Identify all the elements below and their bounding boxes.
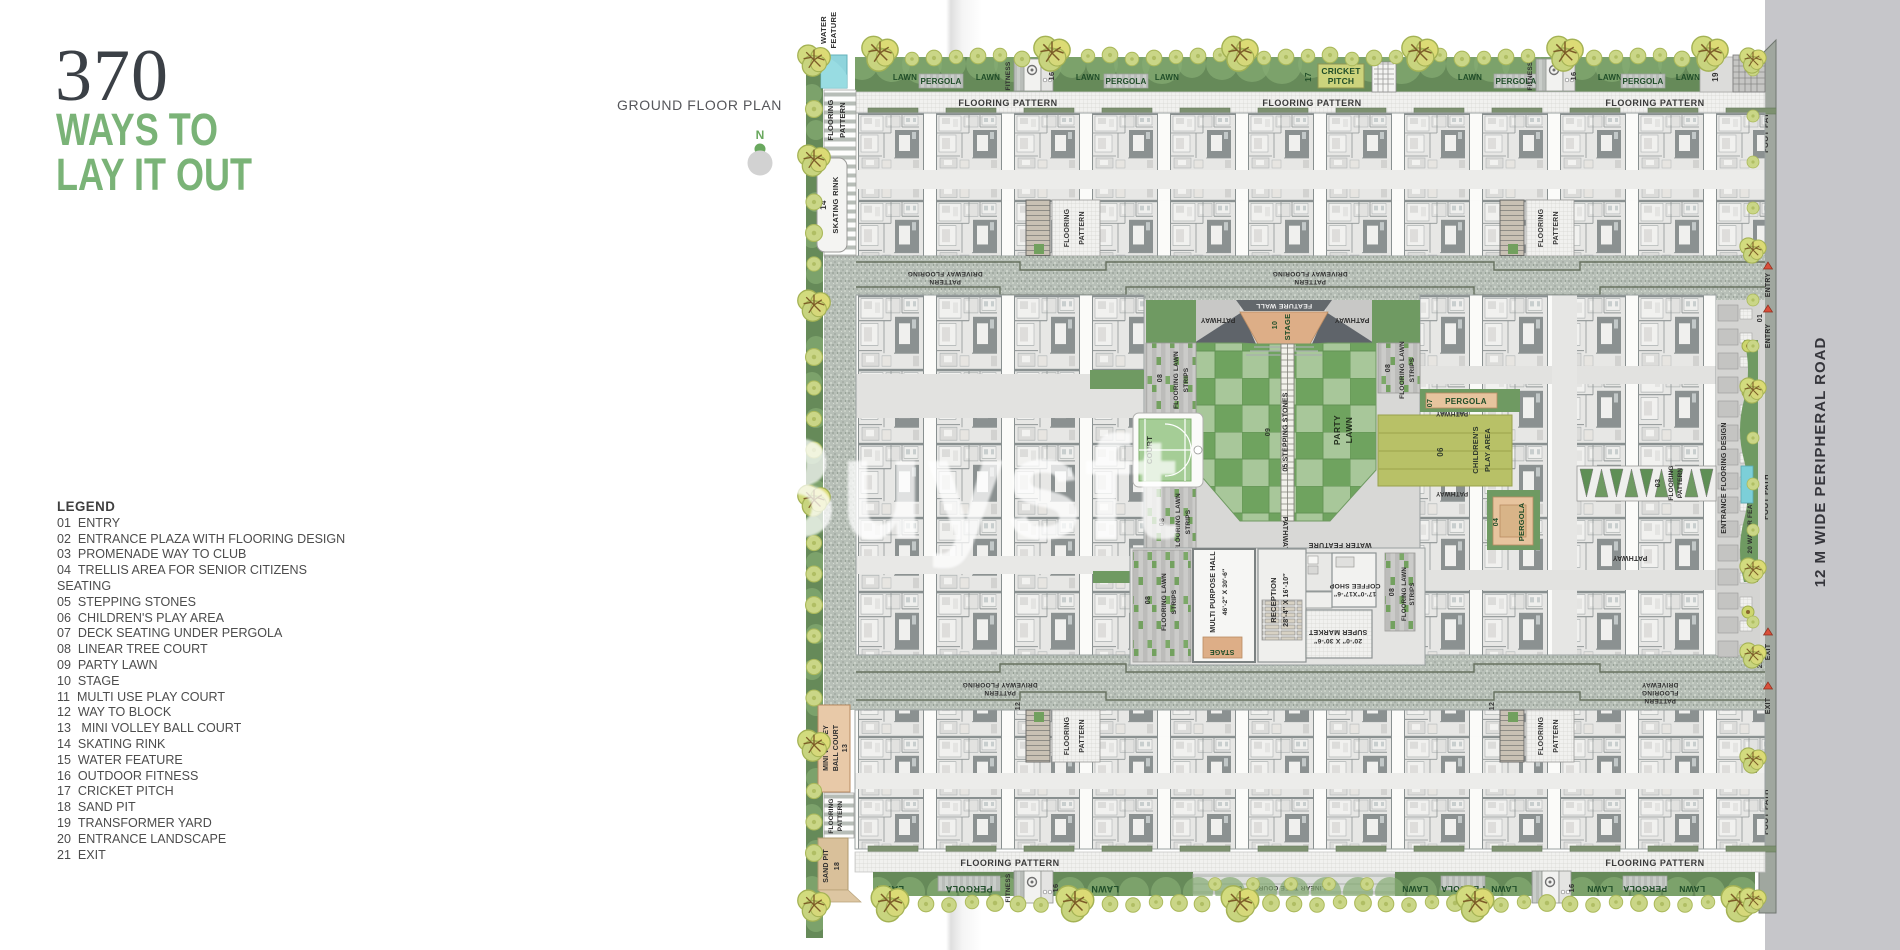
svg-text:PARTY: PARTY bbox=[1332, 415, 1342, 445]
svg-text:10: 10 bbox=[1272, 321, 1279, 329]
svg-text:FLOORING LAWN: FLOORING LAWN bbox=[1399, 341, 1406, 399]
svg-text:FLOORING PATTERN: FLOORING PATTERN bbox=[960, 858, 1059, 868]
svg-text:MULTI PURPOSE HALL: MULTI PURPOSE HALL bbox=[1208, 551, 1217, 633]
svg-text:PERGOLA: PERGOLA bbox=[1445, 397, 1487, 406]
svg-text:LAWN: LAWN bbox=[1344, 417, 1354, 444]
svg-text:FLOORING: FLOORING bbox=[826, 99, 835, 140]
svg-text:19: 19 bbox=[1711, 72, 1720, 82]
svg-text:FITNESS: FITNESS bbox=[1527, 61, 1534, 90]
svg-text:STRIPS: STRIPS bbox=[1185, 509, 1192, 534]
svg-text:WATER: WATER bbox=[819, 16, 828, 44]
svg-text:08: 08 bbox=[1157, 374, 1164, 382]
svg-text:07: 07 bbox=[1427, 399, 1434, 407]
svg-text:PATTERN: PATTERN bbox=[929, 278, 961, 285]
svg-text:PATHWAY: PATHWAY bbox=[1435, 410, 1468, 417]
svg-text:01: 01 bbox=[1757, 314, 1764, 322]
svg-text:05 STEPPING STONES: 05 STEPPING STONES bbox=[1283, 392, 1290, 471]
svg-text:STAGE: STAGE bbox=[1210, 648, 1235, 655]
svg-text:BALL COURT: BALL COURT bbox=[833, 724, 840, 771]
svg-text:FLOORING: FLOORING bbox=[1668, 465, 1675, 500]
svg-text:16: 16 bbox=[1567, 884, 1576, 893]
svg-text:06: 06 bbox=[1436, 447, 1445, 457]
svg-text:LAWN: LAWN bbox=[1091, 884, 1119, 894]
svg-text:46'-2″ X 30'-6″: 46'-2″ X 30'-6″ bbox=[1222, 568, 1229, 615]
svg-text:PLAY AREA: PLAY AREA bbox=[1483, 428, 1492, 472]
svg-text:PATTERN: PATTERN bbox=[1677, 468, 1684, 499]
svg-text:FLOORING PATTERN: FLOORING PATTERN bbox=[1605, 98, 1704, 108]
svg-text:DRIVEWAY: DRIVEWAY bbox=[1641, 681, 1678, 688]
svg-text:FLOORING LAWN: FLOORING LAWN bbox=[1173, 351, 1180, 409]
svg-text:PATTERN: PATTERN bbox=[838, 102, 847, 138]
svg-text:FEATURE: FEATURE bbox=[829, 12, 838, 49]
svg-text:ENTRANCE FLOORING DESIGN: ENTRANCE FLOORING DESIGN bbox=[1721, 422, 1728, 533]
svg-text:PERGOLA: PERGOLA bbox=[921, 77, 962, 86]
svg-text:LAWN: LAWN bbox=[1679, 884, 1705, 894]
svg-text:PITCH: PITCH bbox=[1328, 76, 1355, 86]
svg-text:09: 09 bbox=[1265, 428, 1272, 436]
svg-text:LAWN: LAWN bbox=[1076, 73, 1100, 82]
svg-text:PATTERN: PATTERN bbox=[1079, 719, 1086, 752]
svg-text:08: 08 bbox=[1145, 596, 1152, 604]
svg-text:12: 12 bbox=[1489, 702, 1496, 710]
svg-text:PATHWAY: PATHWAY bbox=[1435, 490, 1468, 497]
svg-text:ENTRY: ENTRY bbox=[1765, 324, 1772, 349]
svg-text:08: 08 bbox=[1385, 364, 1392, 372]
svg-text:LAWN: LAWN bbox=[1587, 884, 1613, 894]
svg-text:PERGOLA: PERGOLA bbox=[1623, 884, 1667, 894]
svg-text:SUPER MARKET: SUPER MARKET bbox=[1308, 628, 1367, 635]
svg-text:LAWN: LAWN bbox=[1491, 884, 1517, 894]
svg-text:FLOORING: FLOORING bbox=[1538, 208, 1545, 247]
svg-text:FEATURE WALL: FEATURE WALL bbox=[1256, 302, 1312, 309]
svg-text:17: 17 bbox=[1304, 72, 1313, 82]
svg-text:CHILDREN'S: CHILDREN'S bbox=[1471, 426, 1480, 474]
svg-text:LAWN: LAWN bbox=[1402, 884, 1428, 894]
svg-text:PERGOLA: PERGOLA bbox=[1106, 77, 1147, 86]
svg-text:RECEPTION: RECEPTION bbox=[1269, 577, 1278, 623]
svg-text:FLOORING: FLOORING bbox=[828, 798, 835, 833]
svg-text:STRIPS: STRIPS bbox=[1183, 367, 1190, 392]
svg-text:FLOORING: FLOORING bbox=[1642, 689, 1679, 696]
svg-text:PATHWAY: PATHWAY bbox=[1201, 316, 1236, 323]
svg-text:08: 08 bbox=[1389, 588, 1396, 596]
svg-text:18: 18 bbox=[834, 862, 841, 870]
svg-text:N: N bbox=[756, 128, 765, 142]
svg-text:PERGOLA: PERGOLA bbox=[1623, 77, 1664, 86]
svg-text:STRIPS: STRIPS bbox=[1409, 357, 1416, 382]
svg-text:PATHWAY: PATHWAY bbox=[1613, 554, 1648, 561]
svg-text:FLOORING PATTERN: FLOORING PATTERN bbox=[958, 98, 1057, 108]
svg-text:PERGOLA: PERGOLA bbox=[945, 884, 992, 894]
svg-text:PATHWAY: PATHWAY bbox=[1335, 316, 1370, 323]
svg-text:PATTERN: PATTERN bbox=[1553, 211, 1560, 244]
svg-text:FLOORING PATTERN: FLOORING PATTERN bbox=[1262, 98, 1361, 108]
svg-text:PATTERN: PATTERN bbox=[984, 689, 1016, 696]
svg-text:FLOORING: FLOORING bbox=[1538, 716, 1545, 755]
svg-text:CRICKET: CRICKET bbox=[1321, 66, 1361, 76]
svg-text:PATTERN: PATTERN bbox=[1079, 211, 1086, 244]
svg-text:17'-0″X17'-6″: 17'-0″X17'-6″ bbox=[1334, 590, 1376, 597]
svg-text:LAWN: LAWN bbox=[976, 73, 1000, 82]
svg-text:12 M WIDE PERIPHERAL ROAD: 12 M WIDE PERIPHERAL ROAD bbox=[1812, 337, 1829, 588]
svg-text:EXIT: EXIT bbox=[1765, 697, 1772, 714]
svg-text:DRIVEWAY FLOORING: DRIVEWAY FLOORING bbox=[1272, 270, 1347, 277]
svg-text:04: 04 bbox=[1493, 518, 1500, 526]
svg-text:SKATING RINK: SKATING RINK bbox=[831, 176, 840, 233]
svg-text:PATTERN: PATTERN bbox=[837, 801, 844, 832]
svg-text:PATTERN: PATTERN bbox=[1553, 719, 1560, 752]
svg-text:LAWN: LAWN bbox=[1676, 73, 1700, 82]
svg-text:03: 03 bbox=[1655, 479, 1662, 487]
svg-text:LAWN: LAWN bbox=[1458, 73, 1482, 82]
svg-text:STRIPS: STRIPS bbox=[1409, 583, 1416, 606]
svg-text:PERGOLA: PERGOLA bbox=[1517, 502, 1526, 541]
svg-text:STRIPS: STRIPS bbox=[1171, 589, 1178, 614]
svg-text:FLOORING: FLOORING bbox=[1064, 208, 1071, 247]
svg-text:16: 16 bbox=[1569, 72, 1578, 81]
svg-text:WATER FEATURE: WATER FEATURE bbox=[1308, 541, 1371, 548]
svg-text:PATHWAY: PATHWAY bbox=[1281, 517, 1288, 552]
svg-text:FLOORING LAWN: FLOORING LAWN bbox=[1161, 573, 1168, 631]
svg-text:STAGE: STAGE bbox=[1283, 314, 1292, 341]
svg-text:12: 12 bbox=[1015, 702, 1022, 710]
svg-text:LAWN: LAWN bbox=[893, 73, 917, 82]
svg-text:LAWN: LAWN bbox=[1155, 73, 1179, 82]
svg-text:16: 16 bbox=[1047, 72, 1056, 81]
svg-text:SAND PIT: SAND PIT bbox=[823, 849, 830, 883]
svg-text:FLOORING LAWN: FLOORING LAWN bbox=[1401, 567, 1408, 621]
svg-text:DRIVEWAY FLOORING: DRIVEWAY FLOORING bbox=[962, 681, 1037, 688]
svg-text:FLOORING PATTERN: FLOORING PATTERN bbox=[1605, 858, 1704, 868]
svg-text:20'-0″ X 30'-6″: 20'-0″ X 30'-6″ bbox=[1313, 637, 1362, 644]
svg-text:FITNESS: FITNESS bbox=[1005, 873, 1012, 902]
svg-text:COFFEE SHOP: COFFEE SHOP bbox=[1329, 582, 1380, 589]
svg-text:PATTERN: PATTERN bbox=[1644, 697, 1676, 704]
svg-text:ENTRY: ENTRY bbox=[1765, 273, 1772, 298]
svg-text:13: 13 bbox=[842, 744, 849, 752]
svg-text:PATTERN: PATTERN bbox=[1294, 278, 1326, 285]
svg-text:LAWN: LAWN bbox=[1598, 73, 1622, 82]
svg-text:FLOORING: FLOORING bbox=[1064, 716, 1071, 755]
svg-text:FITNESS: FITNESS bbox=[1005, 61, 1012, 90]
svg-text:28'-4″ X 16'-10″: 28'-4″ X 16'-10″ bbox=[1283, 573, 1290, 627]
svg-text:DRIVEWAY FLOORING: DRIVEWAY FLOORING bbox=[907, 270, 982, 277]
